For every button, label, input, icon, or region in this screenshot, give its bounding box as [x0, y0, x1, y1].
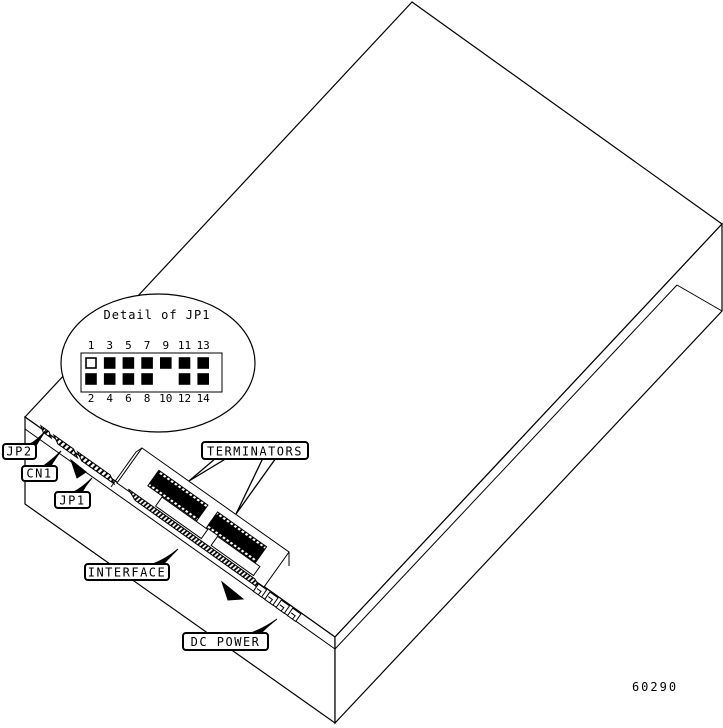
jp1-pin-number-13: 13	[197, 339, 210, 352]
jp1-pin-number-9: 9	[162, 339, 169, 352]
jp1-pin-number-6: 6	[125, 392, 132, 405]
jp1-pin-12-filled	[180, 374, 190, 384]
diagram-canvas: Detail of JP1 1357911132468101214 JP2 CN…	[0, 0, 723, 728]
figure-number: 60290	[632, 680, 678, 694]
jp1-pin-5-filled	[123, 358, 133, 368]
jp2-label: JP2	[6, 445, 32, 459]
jp1-pin-number-3: 3	[106, 339, 113, 352]
jp1-pin-number-5: 5	[125, 339, 132, 352]
interface-label: INTERFACE	[88, 566, 167, 580]
terminators-label: TERMINATORS	[207, 445, 303, 459]
jp1-pin-number-2: 2	[88, 392, 95, 405]
jp1-pin-number-10: 10	[159, 392, 172, 405]
jp1-pin-4-filled	[105, 374, 115, 384]
jp1-pin-6-filled	[123, 374, 133, 384]
jp1-pin-11-filled	[180, 358, 190, 368]
jp1-pin-number-11: 11	[178, 339, 191, 352]
jp1-label: JP1	[59, 494, 85, 508]
isometric-drive-diagram: Detail of JP1 1357911132468101214 JP2 CN…	[0, 0, 723, 728]
jp1-pin-8-filled	[142, 374, 152, 384]
detail-callout-title: Detail of JP1	[104, 308, 211, 322]
jp1-pin-number-4: 4	[106, 392, 113, 405]
jp1-pin-14-filled	[198, 374, 208, 384]
jp1-pin-number-1: 1	[88, 339, 95, 352]
jp1-pin-7-filled	[142, 358, 152, 368]
jp1-pin-number-7: 7	[144, 339, 151, 352]
jp1-pin-13-filled	[198, 358, 208, 368]
jp1-pin-2-filled	[86, 374, 96, 384]
cn1-label: CN1	[26, 467, 52, 481]
jp1-pin-9-filled	[161, 358, 171, 368]
jp1-pin-number-8: 8	[144, 392, 151, 405]
jp1-pin-number-14: 14	[197, 392, 211, 405]
jp1-pin-1-open	[86, 358, 96, 368]
dc-power-label: DC POWER	[191, 635, 261, 649]
jp1-pin-number-12: 12	[178, 392, 191, 405]
jp1-pin-3-filled	[105, 358, 115, 368]
